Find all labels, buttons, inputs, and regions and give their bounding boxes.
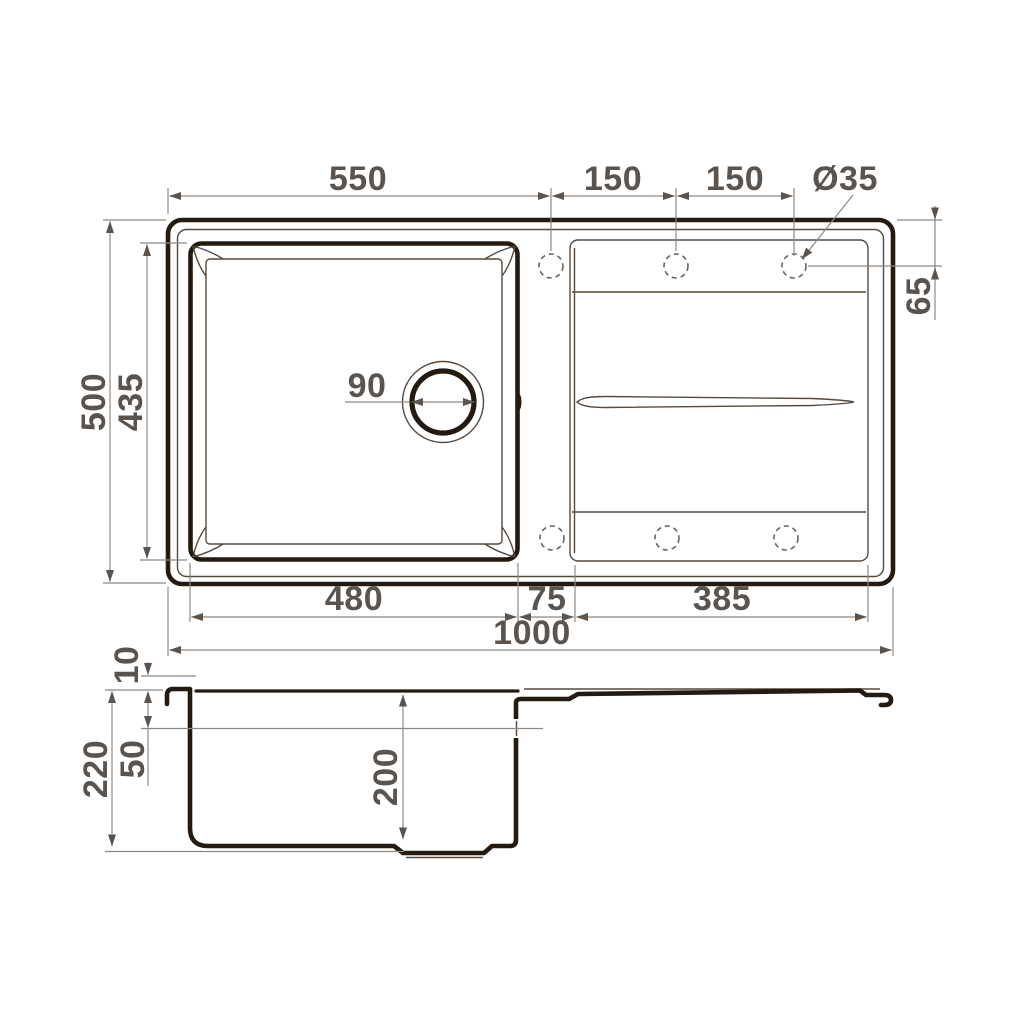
side-view-dimensions: 10 50 220 200	[77, 646, 405, 852]
dim-label-50: 50	[114, 740, 152, 779]
dim-label-480: 480	[325, 580, 383, 618]
hole-diameter-leader	[802, 195, 853, 259]
dim-label-hole-diameter: Ø35	[812, 160, 878, 198]
dim-label-385: 385	[693, 580, 751, 618]
side-view	[141, 689, 891, 858]
dim-label-65: 65	[900, 277, 938, 316]
dim-label-150b: 150	[706, 160, 764, 198]
dim-label-10: 10	[108, 646, 146, 685]
section-profile	[167, 689, 891, 853]
dim-label-435: 435	[112, 373, 150, 431]
tap-hole	[774, 526, 798, 550]
tap-hole	[539, 254, 563, 278]
dim-label-550: 550	[329, 160, 387, 198]
dim-label-75: 75	[528, 580, 567, 618]
top-view	[168, 220, 893, 584]
top-view-dimensions: 550 150 150 Ø35 500 435 90 65 480 75 385…	[75, 160, 942, 656]
tap-hole	[664, 254, 688, 278]
dim-label-1000: 1000	[493, 614, 571, 652]
overflow-slot	[516, 394, 522, 411]
drainboard-groove	[577, 397, 854, 408]
tap-hole	[540, 526, 564, 550]
dim-label-500: 500	[75, 373, 113, 431]
tap-hole	[655, 526, 679, 550]
sink-technical-drawing: 550 150 150 Ø35 500 435 90 65 480 75 385…	[0, 0, 1024, 1024]
dim-label-220: 220	[77, 740, 115, 798]
dim-label-200: 200	[367, 748, 405, 806]
dim-label-90: 90	[348, 367, 387, 405]
drawing-canvas: 550 150 150 Ø35 500 435 90 65 480 75 385…	[0, 0, 1024, 1024]
dim-label-150a: 150	[584, 160, 642, 198]
